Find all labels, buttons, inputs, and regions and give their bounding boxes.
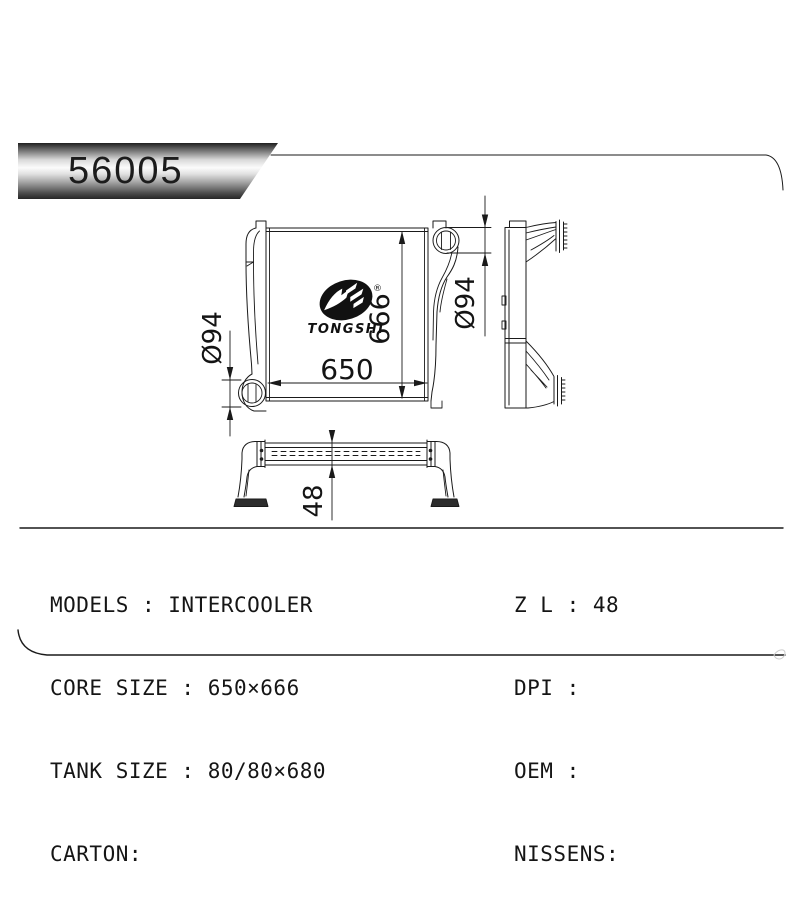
- brand-name: TONGSHI: [307, 322, 384, 337]
- side-view: [502, 220, 567, 408]
- dimensions: 650 666 Ø94 Ø94 48: [198, 196, 491, 520]
- spec-row-dpi: DPI :: [514, 675, 619, 703]
- catalog-page: 56005: [0, 0, 800, 800]
- spec-left-column: MODELS : INTERCOOLER CORE SIZE : 650×666…: [50, 537, 326, 923]
- spec-row-zl: Z L : 48: [514, 592, 619, 620]
- spec-row-carton: CARTON:: [50, 841, 326, 869]
- spec-row-nissens: NISSENS:: [514, 841, 619, 869]
- registered-mark: ®: [373, 284, 382, 294]
- bottom-view: [234, 440, 459, 507]
- dim-core-width-label: 650: [320, 353, 373, 386]
- dim-right-port-label: Ø94: [451, 276, 481, 330]
- spec-right-column: Z L : 48 DPI : OEM : NISSENS:: [514, 537, 619, 923]
- spec-row-oem: OEM :: [514, 758, 619, 786]
- dim-left-port-label: Ø94: [198, 311, 228, 365]
- spec-row-tank-size: TANK SIZE : 80/80×680: [50, 758, 326, 786]
- spec-row-core-size: CORE SIZE : 650×666: [50, 675, 326, 703]
- dim-depth-label: 48: [299, 484, 329, 517]
- spec-row-models: MODELS : INTERCOOLER: [50, 592, 326, 620]
